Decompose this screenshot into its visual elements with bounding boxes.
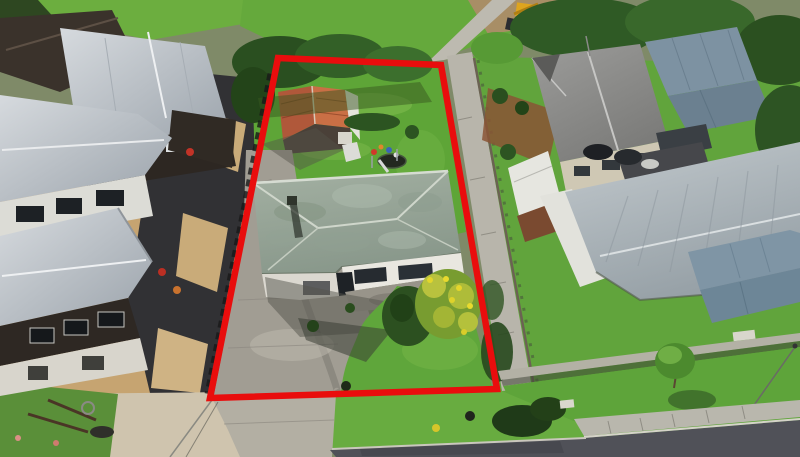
newbuild-b-window-2 <box>64 320 88 335</box>
debris-dark <box>90 426 114 438</box>
site-orange-object <box>173 286 181 294</box>
house-window-1 <box>354 267 387 284</box>
site-red-object-1 <box>186 148 194 156</box>
berm-tree-shadow <box>668 390 716 410</box>
kowhai-blob-1 <box>422 274 446 298</box>
site-red-object-2 <box>158 268 166 276</box>
front-bush-inner <box>390 294 414 322</box>
roof-mottle-2 <box>332 184 392 208</box>
kowhai-flower-4 <box>467 303 473 309</box>
aerial-photo-frame <box>0 0 800 457</box>
berm-dark-dot <box>465 411 475 421</box>
kowhai-flower-6 <box>461 329 467 335</box>
parked-car-2 <box>614 149 642 165</box>
garage-door-trim <box>338 132 352 144</box>
neighbour-garden-shrub-2 <box>515 101 529 115</box>
berm-white-slab <box>560 399 575 408</box>
parked-car-white <box>641 159 659 169</box>
newbuild-a2-window-2 <box>56 198 82 214</box>
neighbour-window-1 <box>574 166 590 176</box>
newbuild-a2-window-1 <box>16 206 44 222</box>
newbuild-b-window-3 <box>98 312 124 327</box>
roof-mottle-5 <box>378 231 426 249</box>
debris-pink-1 <box>15 435 21 441</box>
roof-mottle-6 <box>266 230 298 246</box>
kowhai-blob-3 <box>433 306 455 328</box>
aerial-photo <box>0 0 800 457</box>
berm-yellow-marker <box>432 424 440 432</box>
berm-bush-2 <box>530 397 566 421</box>
kowhai-flower-5 <box>449 297 455 303</box>
newbuild-a2-window-3 <box>96 190 124 206</box>
roof-mottle-3 <box>398 192 442 212</box>
garden-shrub-dot <box>405 125 419 139</box>
kowhai-flower-2 <box>443 276 449 282</box>
kowhai-blob-4 <box>458 312 478 332</box>
playground-blue-part <box>386 147 392 153</box>
neighbour-garden-shrub-3 <box>500 144 516 160</box>
lawn-dark-dot <box>341 381 351 391</box>
debris-pink-2 <box>53 440 59 446</box>
chimney <box>287 196 297 205</box>
newbuild-b-door-2 <box>82 356 104 370</box>
lawn-shrub-1 <box>307 320 319 332</box>
garden-shrub-row <box>344 113 400 131</box>
parked-car-1 <box>583 144 613 160</box>
roof-mottle-1 <box>274 202 326 222</box>
wire-pole <box>793 344 798 349</box>
newbuild-b-door-1 <box>28 366 48 380</box>
hedge-top-center <box>471 32 523 64</box>
lawn-shrub-2 <box>345 303 355 313</box>
kowhai-flower-1 <box>427 277 433 283</box>
newbuild-b-window-1 <box>30 328 54 343</box>
playground-orange-part <box>379 145 384 150</box>
berm-tree-highlight <box>658 346 682 364</box>
neighbour-garden-shrub-1 <box>492 88 508 104</box>
bottom-left-grass <box>0 382 118 457</box>
playground-red-part <box>371 149 377 155</box>
kowhai-flower-3 <box>456 285 462 291</box>
roof-mottle-4 <box>314 232 370 252</box>
